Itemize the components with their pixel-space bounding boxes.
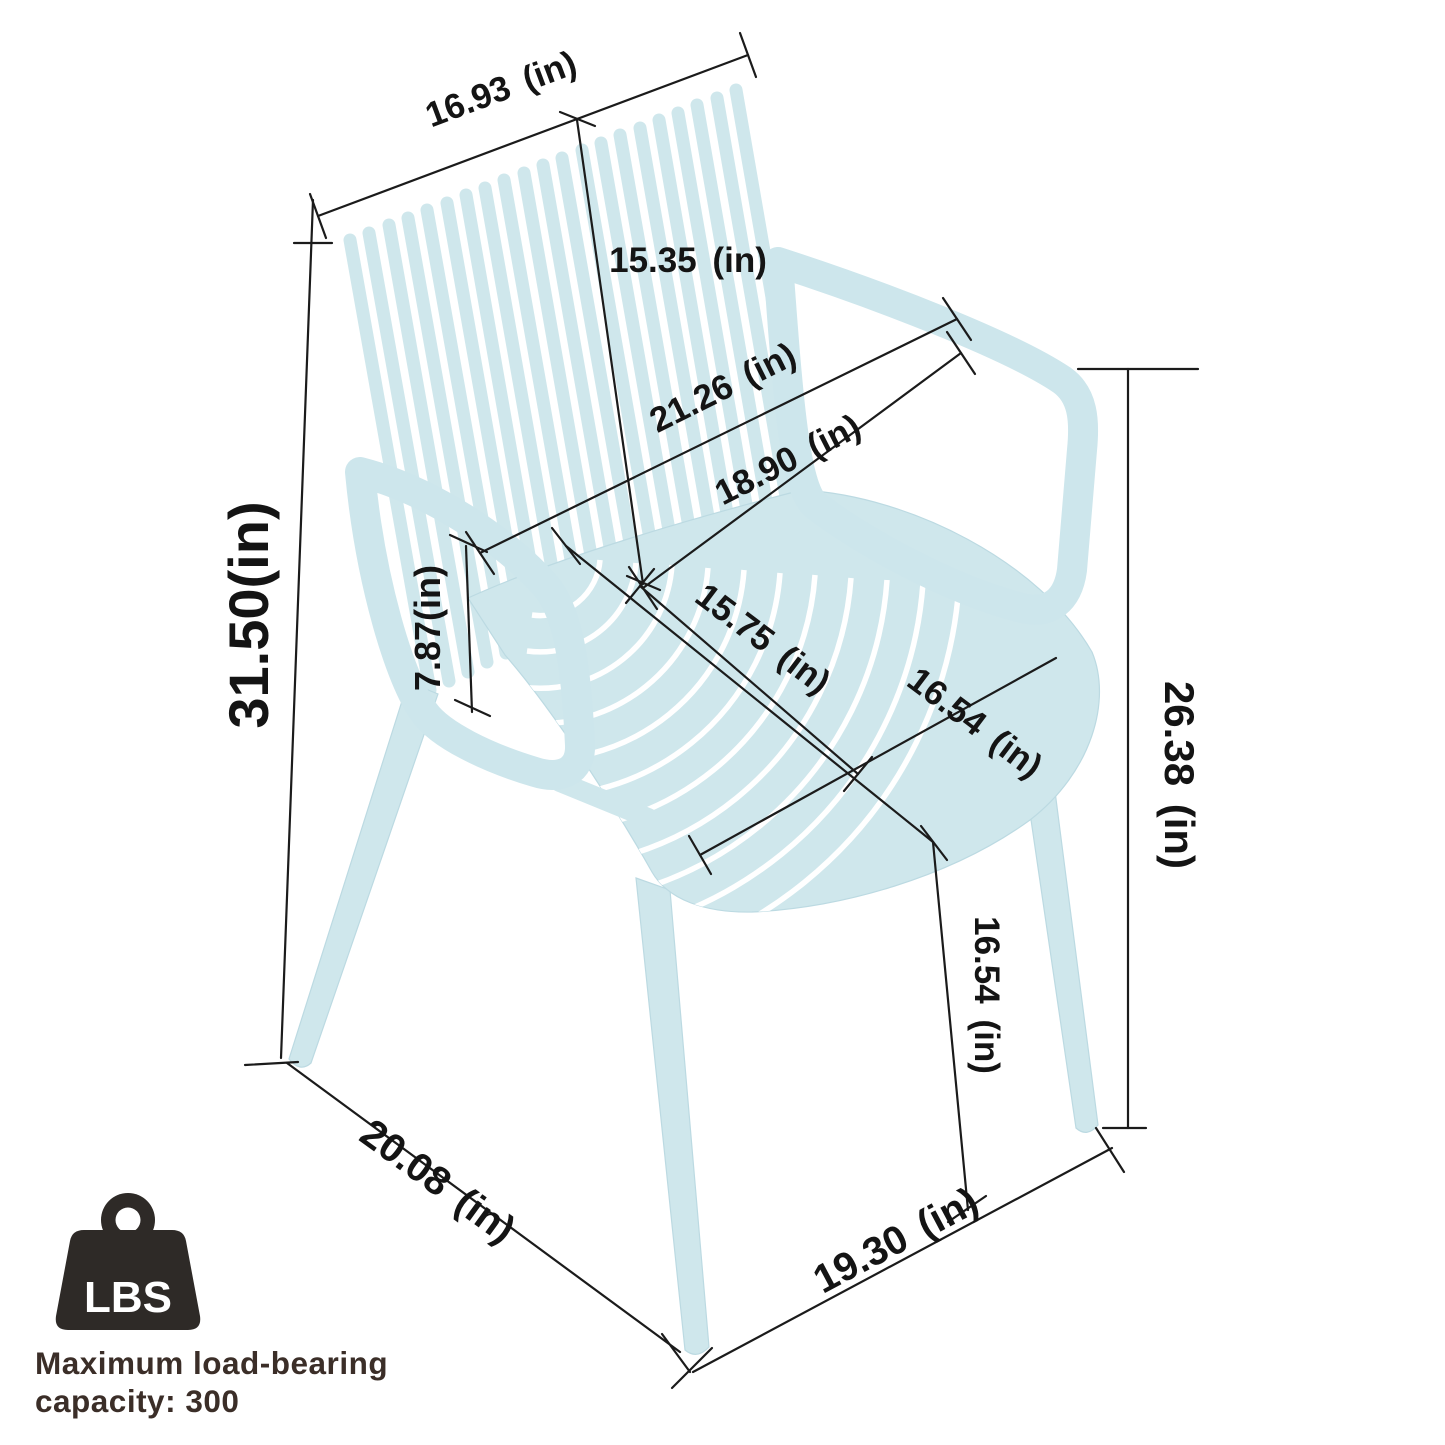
load-caption-line1: Maximum load-bearing [35,1345,388,1381]
load-caption-line2: capacity: 300 [35,1383,239,1419]
dim-label-armrest-height: 7.87(in) [407,565,448,691]
load-capacity-badge: LBS Maximum load-bearing capacity: 300 [35,1193,388,1419]
dim-label-base-depth: 20.08 (in) [352,1111,523,1252]
product-dimension-figure: 16.93 (in) 15.35 (in) 21.26 (in) 18.90 (… [0,0,1445,1445]
dim-seat-height: 16.54 (in) [933,842,1006,1222]
dim-base-depth: 20.08 (in) [287,1063,712,1388]
weight-icon-ring-hole [116,1208,141,1233]
dim-overall-height: 31.50(in) [217,200,332,1065]
dim-base-width: 19.30 (in) [693,1128,1124,1372]
chair-leg-rear-left [289,682,438,1067]
dim-armrest-to-floor: 26.38 (in) [1078,369,1203,1128]
weight-icon-label: LBS [84,1273,172,1322]
dim-label-overall-height: 31.50(in) [217,501,280,728]
dim-label-backrest-height: 15.35 (in) [609,241,767,280]
chair-dimension-diagram: 16.93 (in) 15.35 (in) 21.26 (in) 18.90 (… [0,0,1445,1445]
dim-label-armrest-to-floor: 26.38 (in) [1156,681,1203,869]
dim-label-back-top-width: 16.93 (in) [420,43,581,135]
chair-leg-front-left [636,878,709,1354]
dim-label-base-width: 19.30 (in) [806,1179,985,1302]
dim-label-seat-height: 16.54 (in) [967,916,1006,1074]
